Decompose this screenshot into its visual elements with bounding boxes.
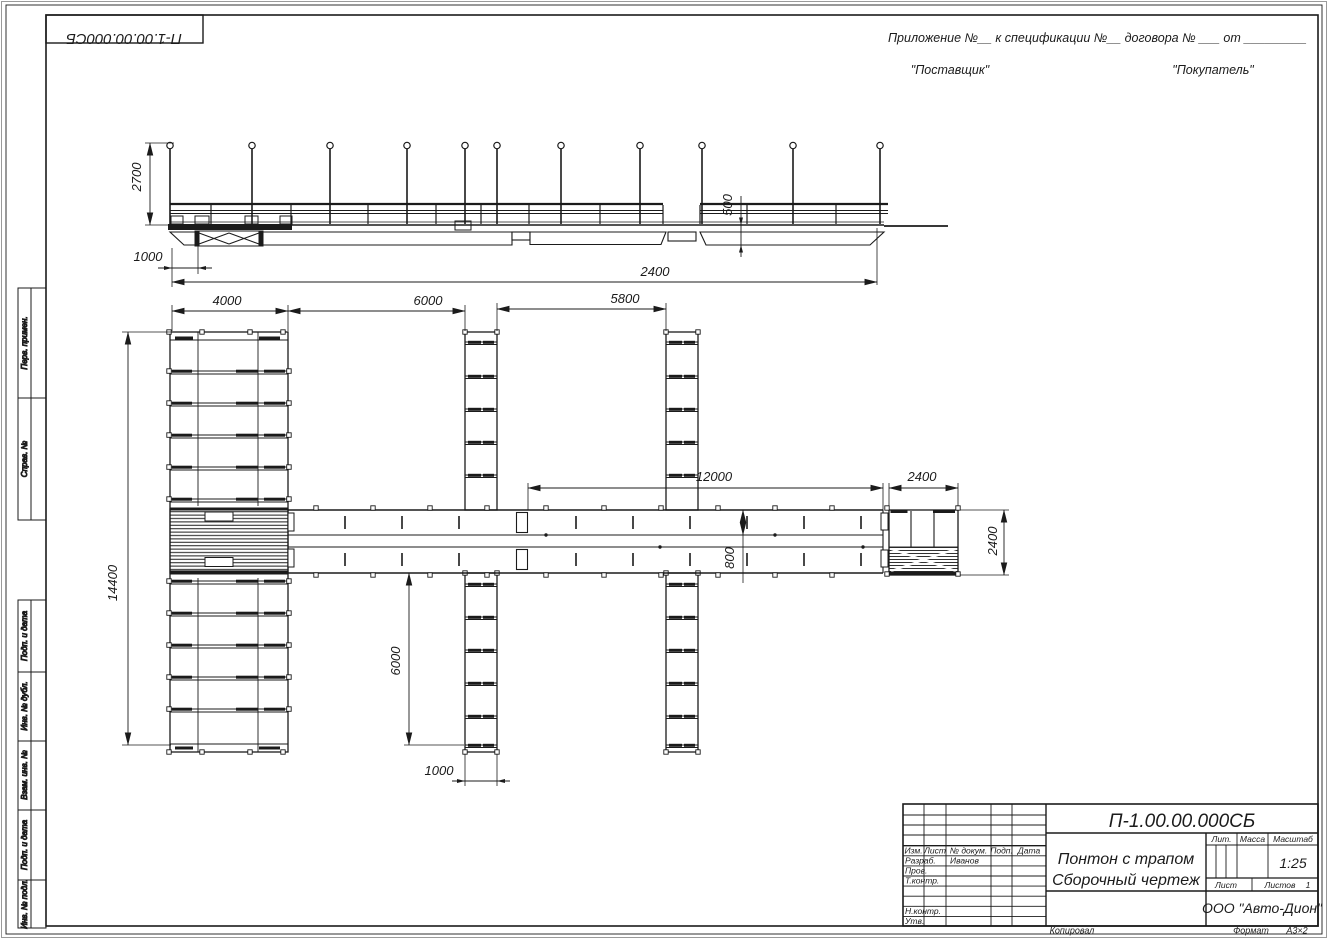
strip-inv-podl: Инв. № подл. <box>20 879 29 929</box>
gangway-hatch-cover-2 <box>205 558 233 567</box>
gangway-hatch-cover-1 <box>205 512 233 521</box>
tb-company: ООО "Авто-Дион" <box>1202 900 1323 916</box>
tb-listov-label: Листов <box>1264 880 1297 890</box>
tb-massa-label: Масса <box>1240 834 1265 844</box>
dim-finger-length: 6000 <box>388 646 403 676</box>
tb-razrab-name: Иванов <box>950 856 979 866</box>
walkway-joint-plate-bottom <box>517 550 528 570</box>
strip-perv-primen: Перв. примен. <box>20 316 29 369</box>
strip-inv-dubl: Инв. № дубл. <box>20 681 29 730</box>
tb-col-list: Лист <box>923 846 946 856</box>
tb-row-utv: Утв. <box>904 916 924 926</box>
tb-doc-number: П-1.00.00.000СБ <box>1109 811 1256 832</box>
sheet-borders <box>2 2 1327 938</box>
dim-side-length: 2400 <box>640 264 671 279</box>
supplier-label: "Поставщик" <box>911 63 990 77</box>
tb-row-prov: Пров. <box>905 866 927 876</box>
tb-row-nkontr: Н.контр. <box>905 906 941 916</box>
tb-listov-value: 1 <box>1306 880 1311 890</box>
tb-col-podp: Подп. <box>990 846 1013 856</box>
dim-walkway-width: 800 <box>722 546 737 568</box>
gangway-plan <box>170 508 288 575</box>
dim-hull-height: 500 <box>720 193 735 215</box>
dim-finger-width: 1000 <box>425 763 455 778</box>
tb-masshtab-label: Масштаб <box>1273 834 1314 844</box>
tb-col-doc: № докум. <box>950 846 987 856</box>
dim-platform-depth: 2400 <box>985 526 1000 557</box>
scissor-mechanism <box>195 231 263 246</box>
footer-format-value: А3×2 <box>1285 926 1307 936</box>
strip-podp-data-1: Подп. и дата <box>20 610 29 661</box>
dim-platform-width: 2400 <box>907 469 938 484</box>
dim-pier-width: 4000 <box>213 293 243 308</box>
contract-line: Приложение №__ к спецификации №__ догово… <box>888 31 1307 45</box>
dim-bay2: 5800 <box>611 291 641 306</box>
strip-vzam-inv: Взам. инв. № <box>20 750 29 800</box>
dim-post-height: 2700 <box>129 162 144 193</box>
tb-list-label: Лист <box>1214 880 1237 890</box>
assembly-drawing: П-1.00.00.000СБ Приложение №__ к специфи… <box>0 0 1328 939</box>
footer-kopiroval: Копировал <box>1050 926 1095 936</box>
tb-title-line2: Сборочный чертеж <box>1052 872 1201 889</box>
tb-lit-label: Лит. <box>1211 834 1232 844</box>
strip-podp-data-2: Подп. и дата <box>20 819 29 870</box>
tb-row-razrab: Разраб. <box>905 856 936 866</box>
top-left-docnum: П-1.00.00.000СБ <box>66 30 182 47</box>
drawing-sheet: П-1.00.00.000СБ Приложение №__ к специфи… <box>0 0 1328 939</box>
walkway-joint-plate-top <box>517 513 528 533</box>
tb-col-data: Дата <box>1017 846 1041 856</box>
dim-bay1: 6000 <box>414 293 444 308</box>
end-platform <box>881 506 960 576</box>
tb-scale-value: 1:25 <box>1279 855 1306 871</box>
strip-sprav-no: Справ. № <box>20 440 29 477</box>
buyer-label: "Покупатель" <box>1172 63 1254 77</box>
tb-title-line1: Понтон с трапом <box>1058 851 1195 868</box>
dim-ramp-offset: 1000 <box>134 249 164 264</box>
tb-row-tkontr: Т.контр. <box>905 876 939 886</box>
dim-pier-length: 14400 <box>105 564 120 601</box>
footer-format-label: Формат <box>1233 926 1269 936</box>
tb-col-izm: Изм. <box>904 846 922 856</box>
dim-walkway-length: 12000 <box>696 469 733 484</box>
